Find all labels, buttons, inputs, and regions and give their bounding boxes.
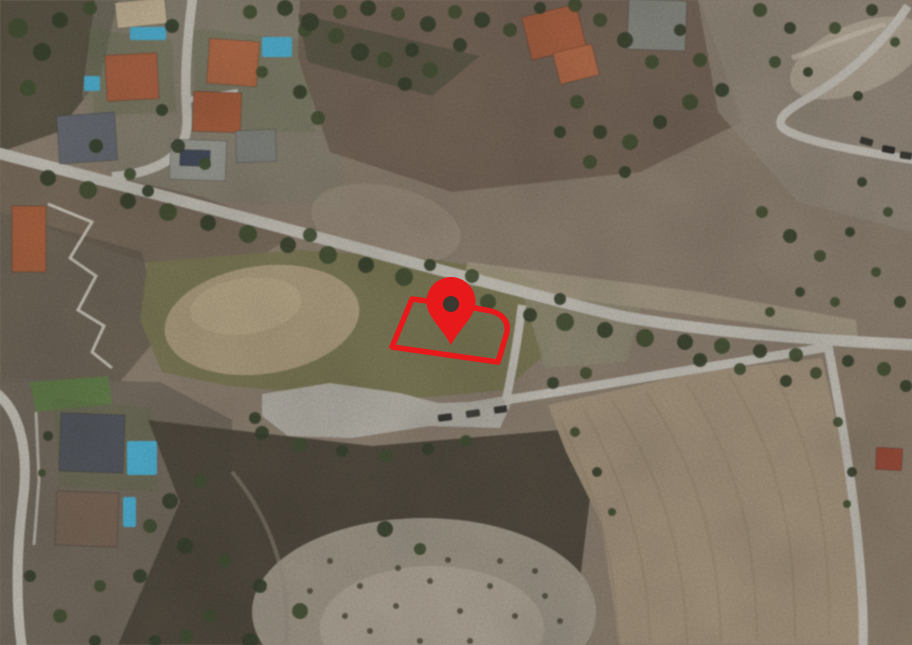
pin-hole [443,296,459,312]
satellite-map-view[interactable] [0,0,912,645]
satellite-map-canvas[interactable] [0,0,912,645]
